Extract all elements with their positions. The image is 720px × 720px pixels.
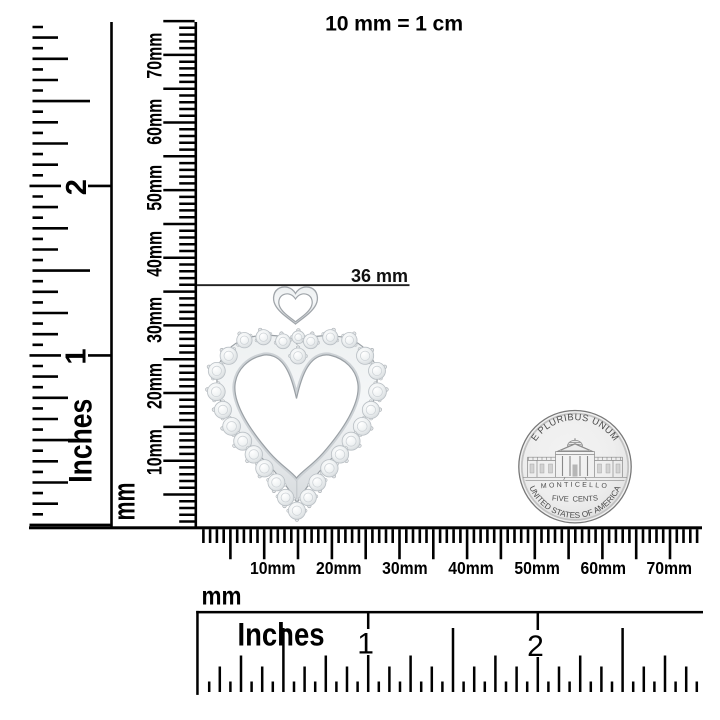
svg-text:30mm: 30mm [382,558,428,578]
svg-text:2: 2 [527,630,544,663]
svg-text:50mm: 50mm [144,165,167,211]
svg-text:10mm: 10mm [250,558,296,578]
svg-text:70mm: 70mm [144,33,167,79]
svg-text:20mm: 20mm [144,363,167,409]
svg-text:mm: mm [202,581,242,611]
svg-text:1: 1 [357,628,374,661]
svg-text:mm: mm [107,483,142,521]
svg-text:Inches: Inches [238,617,325,653]
svg-text:30mm: 30mm [144,297,167,343]
svg-text:40mm: 40mm [448,558,494,578]
svg-text:40mm: 40mm [144,231,167,277]
svg-text:2: 2 [61,179,93,195]
svg-text:1: 1 [61,348,93,364]
svg-text:60mm: 60mm [580,558,626,578]
svg-text:36 mm: 36 mm [351,266,408,286]
svg-text:10 mm = 1 cm: 10 mm = 1 cm [325,13,463,36]
svg-text:Inches: Inches [63,399,99,483]
svg-text:20mm: 20mm [316,558,362,578]
svg-text:10mm: 10mm [144,429,167,475]
svg-text:FIVE CENTS: FIVE CENTS [552,493,599,503]
svg-text:70mm: 70mm [647,558,693,578]
svg-text:50mm: 50mm [514,558,560,578]
svg-text:60mm: 60mm [144,99,167,145]
